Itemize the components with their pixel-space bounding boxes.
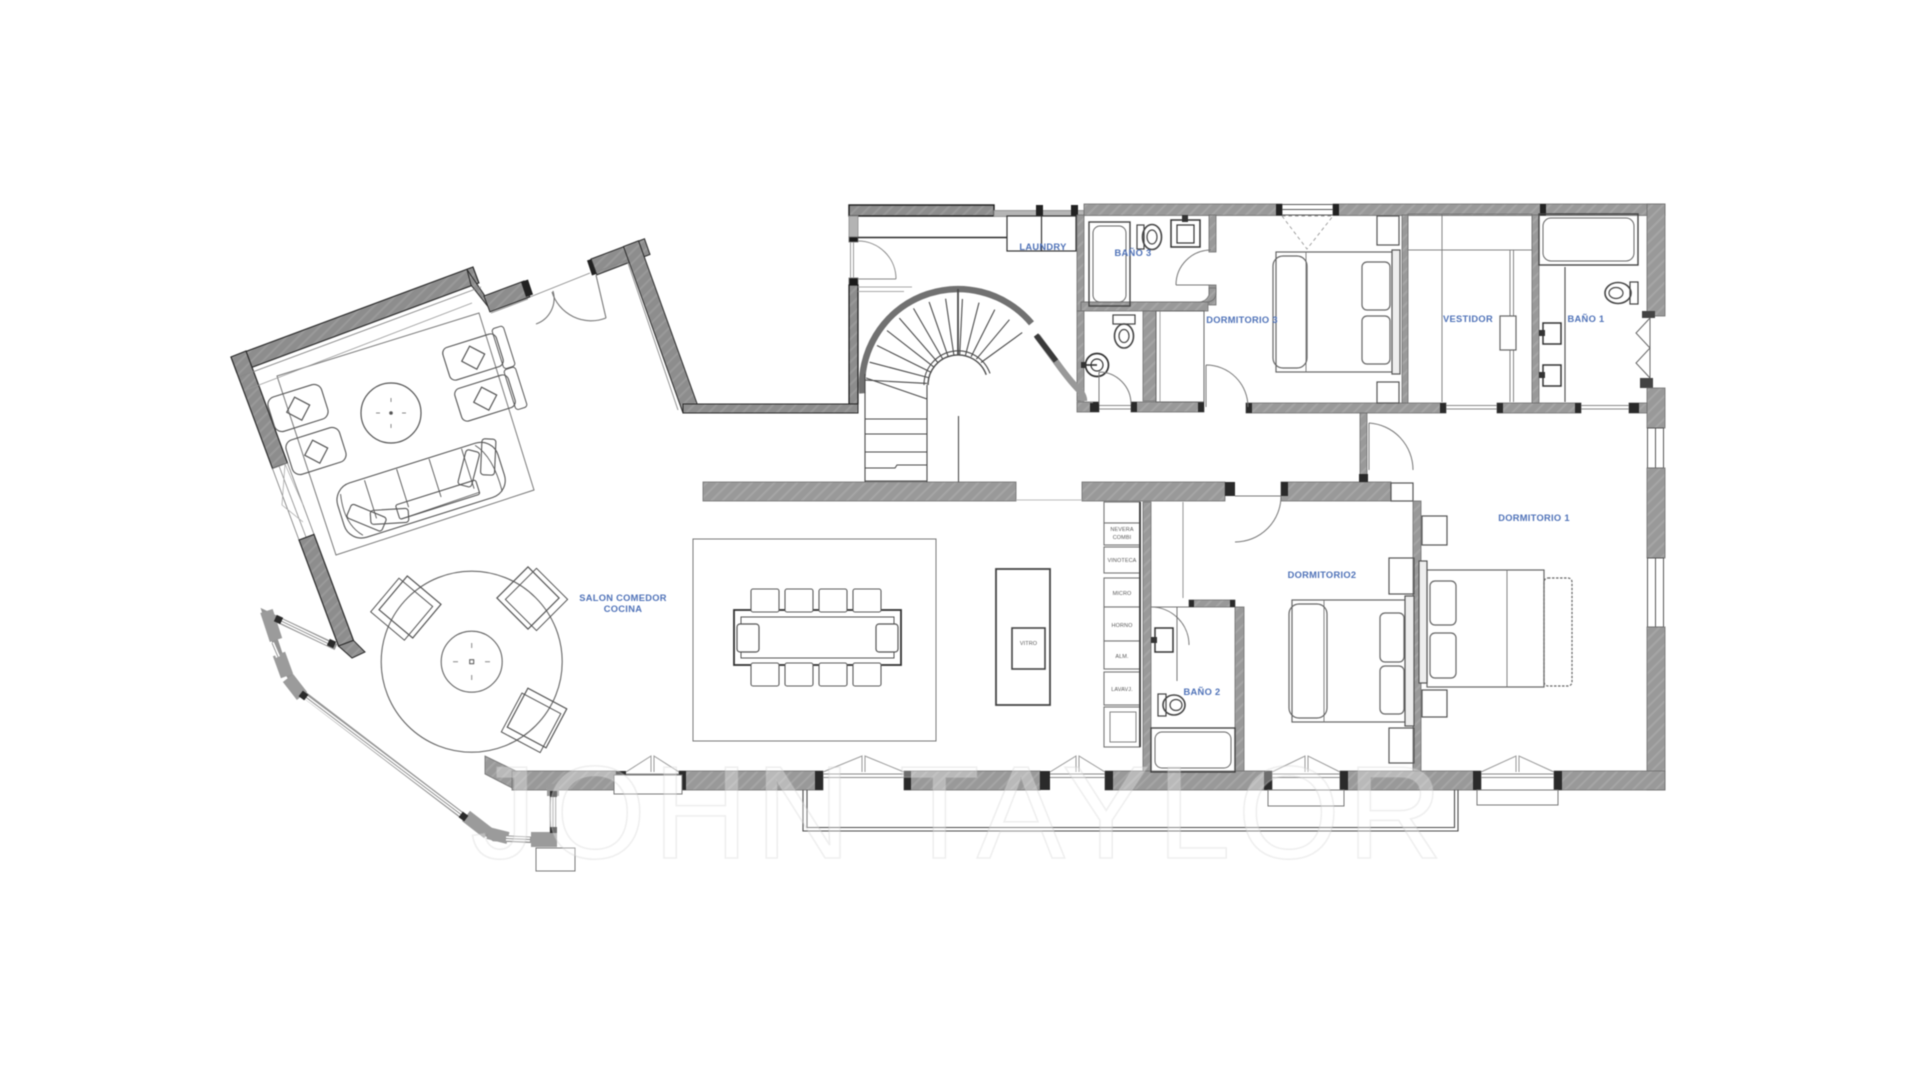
svg-text:VINOTECA: VINOTECA xyxy=(1108,558,1137,564)
svg-text:COMBI: COMBI xyxy=(1113,535,1132,541)
svg-text:VESTIDOR: VESTIDOR xyxy=(1443,314,1493,324)
svg-text:BAÑO 1: BAÑO 1 xyxy=(1568,314,1605,324)
svg-text:LAUNDRY: LAUNDRY xyxy=(1019,242,1067,252)
svg-text:SALON COMEDOR: SALON COMEDOR xyxy=(579,593,667,603)
svg-text:VITRO: VITRO xyxy=(1020,641,1038,647)
svg-text:MICRO: MICRO xyxy=(1113,591,1132,597)
svg-text:LAVAVJ.: LAVAVJ. xyxy=(1111,687,1133,693)
svg-text:BAÑO 2: BAÑO 2 xyxy=(1184,687,1221,697)
svg-text:JOHN TAYLOR: JOHN TAYLOR xyxy=(470,739,1449,886)
svg-text:DORMITORIO 3: DORMITORIO 3 xyxy=(1206,315,1278,325)
svg-text:DORMITORIO2: DORMITORIO2 xyxy=(1288,570,1357,580)
svg-text:COCINA: COCINA xyxy=(604,604,642,614)
svg-text:ALM.: ALM. xyxy=(1115,654,1129,660)
svg-text:HORNO: HORNO xyxy=(1112,623,1134,629)
svg-text:NEVERA: NEVERA xyxy=(1110,527,1133,533)
svg-text:BAÑO 3: BAÑO 3 xyxy=(1115,248,1152,258)
svg-text:DORMITORIO 1: DORMITORIO 1 xyxy=(1498,513,1570,523)
